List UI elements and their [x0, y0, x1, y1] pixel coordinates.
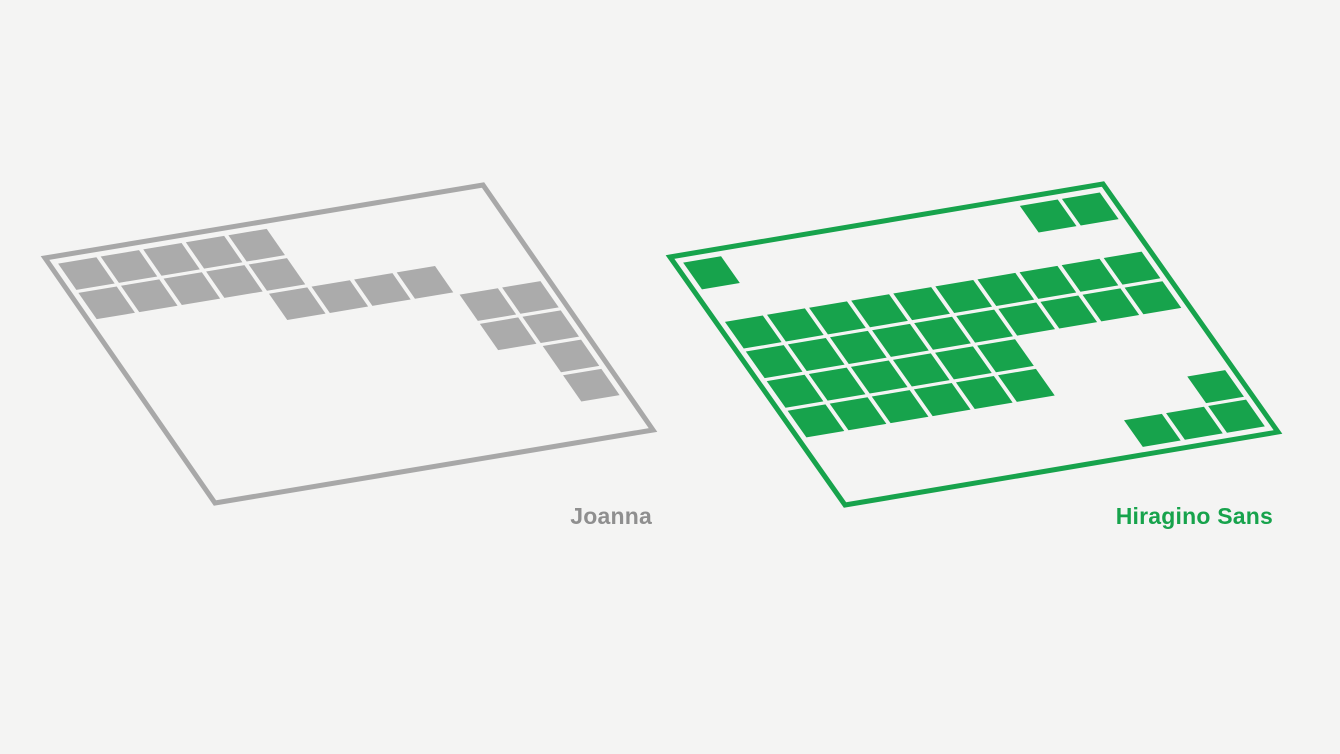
- isometric-grids-canvas: [0, 0, 1340, 754]
- grid-label-joanna: Joanna: [570, 503, 652, 530]
- font-coverage-figure: Joanna Hiragino Sans: [0, 0, 1340, 754]
- grid-label-hiragino-sans: Hiragino Sans: [1116, 503, 1273, 530]
